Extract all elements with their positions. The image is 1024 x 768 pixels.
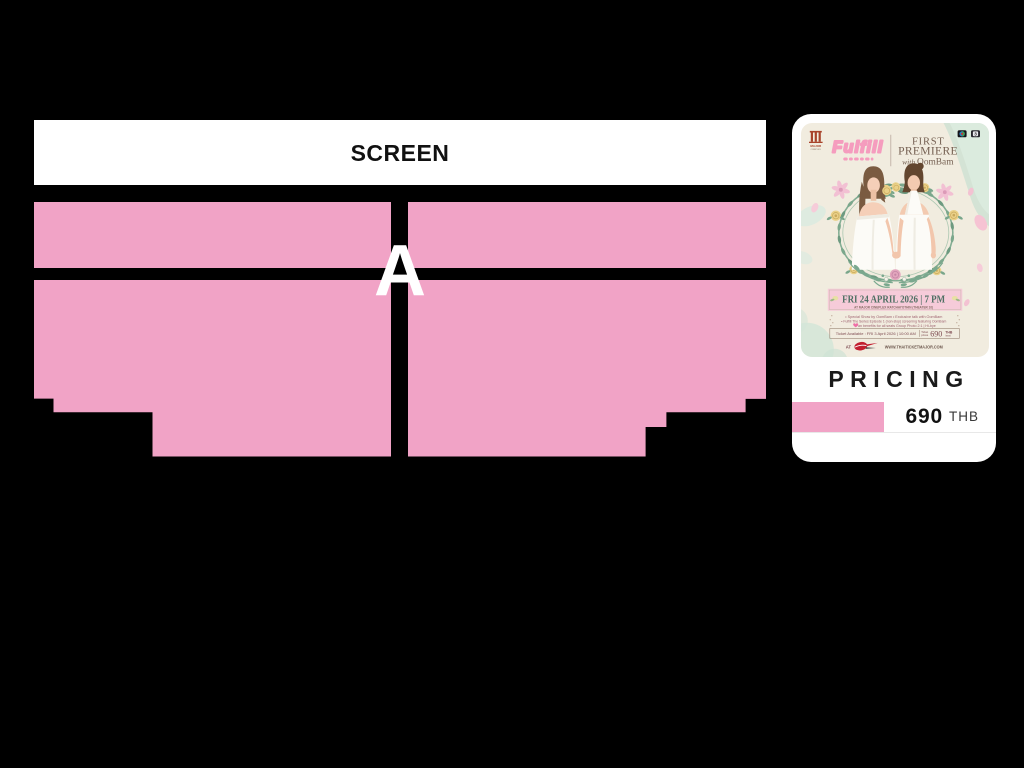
svg-text:Fan benefits for all seats Gro: Fan benefits for all seats Group Photo 2… bbox=[856, 324, 936, 328]
svg-text:AT: AT bbox=[846, 344, 852, 349]
svg-text:WWW.THAITICKETMAJOR.COM: WWW.THAITICKETMAJOR.COM bbox=[885, 344, 943, 349]
svg-text:prices: prices bbox=[921, 333, 929, 337]
svg-text:CINEPLEX: CINEPLEX bbox=[811, 149, 822, 151]
svg-text:FRI 24 APRIL 2026 | 7 PM: FRI 24 APRIL 2026 | 7 PM bbox=[842, 294, 945, 305]
svg-text:• Fulfill The Series Episode 1: • Fulfill The Series Episode 1 (non-stop… bbox=[841, 319, 946, 323]
svg-text:Ticket Available : FRI 3 April: Ticket Available : FRI 3 April 2026 | 10… bbox=[836, 332, 916, 336]
svg-text:690: 690 bbox=[930, 329, 942, 338]
svg-text:• Special Show by OomBam • Exc: • Special Show by OomBam • Exclusive tal… bbox=[845, 315, 942, 319]
svg-text:MAJOR: MAJOR bbox=[810, 144, 822, 148]
svg-text:3: 3 bbox=[974, 131, 977, 136]
svg-text:Fulfill: Fulfill bbox=[832, 138, 883, 156]
svg-text:/seat: /seat bbox=[945, 334, 951, 337]
svg-text:AT MAJOR CINEPLEX RATCHAYOTHIN: AT MAJOR CINEPLEX RATCHAYOTHIN (THEATER … bbox=[854, 305, 933, 309]
svg-text:PREMIERE: PREMIERE bbox=[898, 144, 958, 157]
